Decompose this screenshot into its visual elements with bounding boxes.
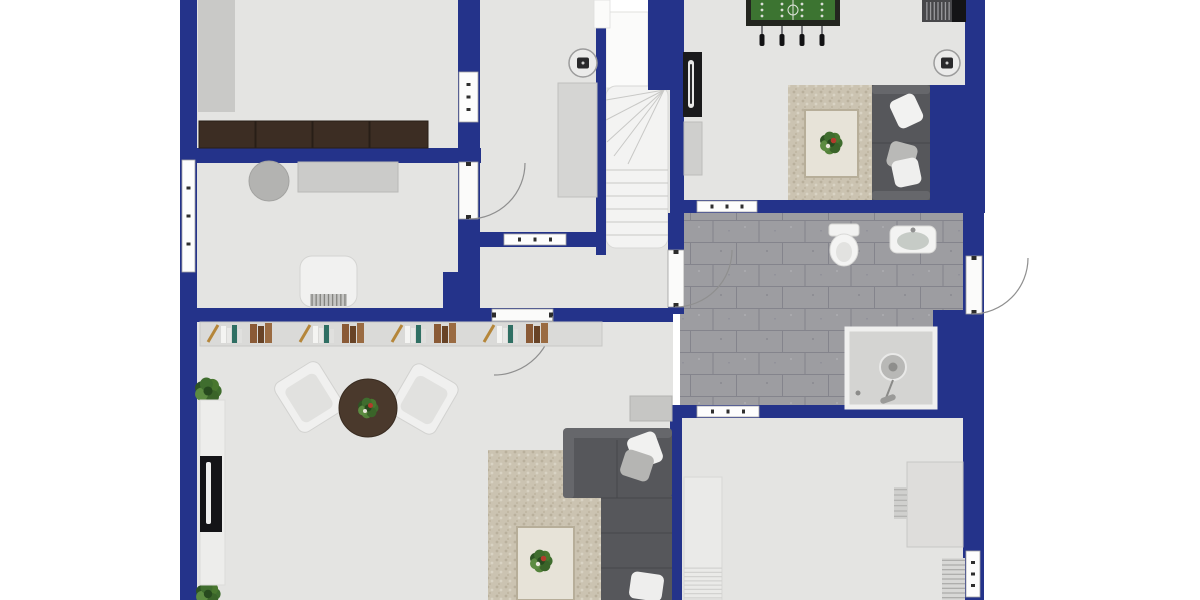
book — [232, 325, 237, 343]
bed-blanket-ribs — [684, 597, 722, 598]
foosball-players — [801, 9, 804, 12]
rug-plant-flower — [541, 556, 547, 562]
radiator — [942, 597, 965, 598]
coat-rack-end — [952, 0, 966, 22]
sink-basin — [897, 232, 929, 250]
radiator — [942, 564, 965, 565]
book — [434, 324, 441, 343]
radiator — [942, 592, 965, 593]
window-bath-north-tick — [726, 205, 729, 209]
side-table — [630, 396, 672, 421]
window-bed-north-tick — [742, 410, 745, 414]
bedroom-chair — [894, 510, 907, 511]
radiator — [942, 578, 965, 579]
study-keyboard — [316, 294, 317, 306]
book — [503, 328, 507, 343]
workbench-cabinet — [256, 121, 312, 148]
foosball-handle — [760, 34, 765, 46]
workbench-cabinet — [313, 121, 369, 148]
coat-rack-hangers — [934, 2, 935, 20]
book — [324, 325, 329, 343]
window-stair-top — [594, 0, 610, 28]
book — [416, 325, 421, 343]
door-study — [459, 162, 478, 219]
book — [227, 328, 231, 343]
book — [514, 329, 518, 343]
window-bath-north-tick — [741, 205, 744, 209]
foosball-players — [781, 9, 784, 12]
wall-jog — [443, 272, 480, 312]
hall-cabinet — [558, 83, 597, 197]
bed — [684, 477, 722, 600]
door-living-cap — [492, 313, 496, 318]
bedroom-chair — [894, 505, 907, 506]
book — [534, 326, 540, 343]
stair-upper-flight — [606, 12, 648, 88]
door-living — [492, 309, 553, 321]
study-sideboard — [298, 162, 398, 192]
window-hall-tick — [518, 238, 521, 242]
book — [422, 329, 426, 343]
book — [442, 326, 448, 343]
window-hall-tick — [534, 238, 537, 242]
rug-plant-flower — [536, 562, 540, 566]
book — [497, 326, 502, 343]
sofa-pillow — [628, 571, 664, 600]
foosball-players — [821, 15, 824, 18]
workbench-cabinet — [370, 121, 428, 148]
foosball-players — [821, 3, 824, 6]
radiator — [942, 560, 965, 561]
study-keyboard — [320, 294, 321, 306]
bathroom-floor-upper — [680, 207, 966, 313]
plan-root — [180, 0, 1028, 600]
window-bed-east-tick — [971, 573, 975, 576]
book — [411, 328, 415, 343]
book — [221, 326, 226, 343]
book — [541, 323, 548, 343]
book — [526, 324, 533, 343]
foosball-handle — [820, 34, 825, 46]
book — [265, 323, 272, 343]
foosball-handle — [800, 34, 805, 46]
study-keyboard — [344, 294, 345, 306]
book — [342, 324, 349, 343]
window-bed-east-tick — [971, 584, 975, 587]
bed-blanket-ribs — [684, 567, 722, 568]
window-hall-tick — [549, 238, 552, 242]
book — [319, 328, 323, 343]
radiator — [942, 588, 965, 589]
door-east-exterior-cap — [972, 256, 977, 260]
bedroom-desk — [907, 462, 963, 547]
room-a-south-wall — [180, 148, 481, 163]
book — [405, 326, 410, 343]
radiator — [942, 574, 965, 575]
book — [258, 326, 264, 343]
game-cabinet — [684, 122, 702, 175]
sink-faucet — [911, 228, 916, 233]
study-keyboard — [311, 294, 312, 306]
living-north-wall — [180, 308, 673, 322]
tv-screen — [206, 462, 211, 524]
bedroom-chair — [894, 516, 907, 517]
foosball-players — [761, 3, 764, 6]
study-pouf — [249, 161, 289, 201]
coat-rack-hangers — [945, 2, 946, 20]
window-study-hall-tick — [467, 96, 471, 99]
book — [313, 326, 318, 343]
bed-blanket-ribs — [684, 584, 722, 585]
window-bath-north-tick — [711, 205, 714, 209]
foosball-players — [801, 3, 804, 6]
study-keyboard — [340, 294, 341, 306]
game-east-wall — [965, 0, 985, 87]
table-bouquet-flower — [368, 403, 373, 408]
floorplan-svg — [0, 0, 1200, 600]
book — [508, 325, 513, 343]
east-wall-block — [930, 85, 985, 202]
window-bed-north-tick — [727, 410, 730, 414]
workbench-cabinet — [199, 121, 255, 148]
tv-cabinet-handle-slot — [690, 64, 692, 104]
stair-east-wall — [648, 0, 672, 90]
bedroom-chair — [894, 500, 907, 501]
book — [250, 324, 257, 343]
book — [357, 323, 364, 343]
radiator — [942, 569, 965, 570]
toilet-bowl-inner — [836, 242, 852, 262]
window-left-tick — [187, 243, 191, 246]
foosball-players — [821, 9, 824, 12]
potted-plant-center — [203, 386, 212, 395]
game-west-wall — [670, 0, 684, 213]
floorplan-canvas — [0, 0, 1200, 600]
bedroom-chair-bg — [894, 487, 907, 519]
door-study-cap — [466, 162, 471, 166]
window-left-tick — [187, 187, 191, 190]
ceiling-lamp-symbol-bulb — [946, 62, 949, 65]
study-keyboard — [332, 294, 333, 306]
bed-blanket-ribs — [684, 593, 722, 594]
sofa-armrest — [563, 430, 574, 498]
foosball-players — [781, 15, 784, 18]
bedroom-chair — [894, 494, 907, 495]
door-hall-bath — [668, 250, 684, 307]
study-keyboard — [328, 294, 329, 306]
book — [449, 323, 456, 343]
foosball-handle — [780, 34, 785, 46]
coat-rack-hangers — [926, 2, 927, 20]
game-sofa-armrest — [872, 85, 930, 94]
window-study-hall-tick — [467, 83, 471, 86]
bed-blanket-ribs — [684, 580, 722, 581]
coat-rack-hangers — [937, 2, 938, 20]
potted-plant-center — [204, 590, 212, 598]
study-keyboard — [336, 294, 337, 306]
game-sofa-pillow — [890, 156, 922, 188]
left-exterior-wall — [180, 0, 197, 600]
coat-rack-hangers — [948, 2, 949, 20]
coat-rack-hangers — [930, 2, 931, 20]
coat-rack-hangers — [941, 2, 942, 20]
bed-blanket-ribs — [684, 576, 722, 577]
staircase — [606, 86, 668, 248]
door-east-exterior — [966, 256, 982, 314]
door-hall-bath-cap — [674, 250, 679, 254]
shower-head-center — [889, 363, 898, 372]
book — [238, 329, 242, 343]
game-rug-plant-flower — [831, 138, 837, 144]
game-sofa-armrest — [872, 191, 930, 200]
radiator — [942, 583, 965, 584]
study-keyboard — [324, 294, 325, 306]
window-bed-east-tick — [971, 561, 975, 564]
foosball-players — [761, 9, 764, 12]
bed-blanket-ribs — [684, 589, 722, 590]
table-bouquet-flower — [363, 409, 367, 413]
bed-blanket-ribs — [684, 572, 722, 573]
window-bed-north-tick — [711, 410, 714, 414]
foosball-players — [801, 15, 804, 18]
window-left-tick — [187, 215, 191, 218]
foosball-players — [781, 3, 784, 6]
game-rug-plant-flower — [826, 144, 830, 148]
book — [350, 326, 356, 343]
ceiling-lamp-symbol-bulb — [582, 62, 585, 65]
bedroom-chair — [894, 489, 907, 490]
room-a-rug — [198, 0, 235, 112]
book — [330, 329, 334, 343]
window-study-hall-tick — [467, 108, 471, 111]
foosball-players — [761, 15, 764, 18]
shower-drain — [856, 391, 861, 396]
